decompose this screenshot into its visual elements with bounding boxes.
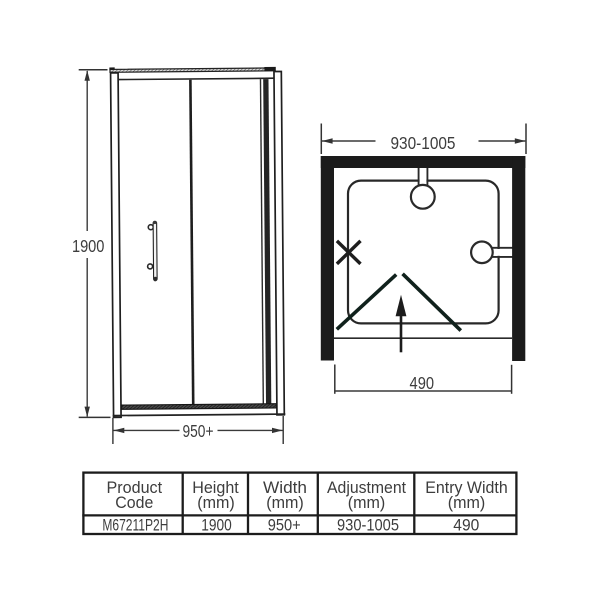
svg-text:(mm): (mm) xyxy=(197,494,235,512)
svg-text:(mm): (mm) xyxy=(348,494,386,512)
svg-text:1900: 1900 xyxy=(201,515,232,534)
svg-text:1900: 1900 xyxy=(72,236,105,256)
svg-text:930-1005: 930-1005 xyxy=(391,133,456,153)
svg-text:M67211P2H: M67211P2H xyxy=(102,515,168,534)
svg-text:(mm): (mm) xyxy=(448,494,486,512)
svg-text:950+: 950+ xyxy=(183,421,214,441)
svg-text:Code: Code xyxy=(115,494,153,512)
svg-text:950+: 950+ xyxy=(268,515,301,534)
svg-text:930-1005: 930-1005 xyxy=(337,515,399,534)
svg-text:(mm): (mm) xyxy=(266,494,304,512)
svg-text:490: 490 xyxy=(410,373,435,393)
svg-text:490: 490 xyxy=(453,515,479,534)
